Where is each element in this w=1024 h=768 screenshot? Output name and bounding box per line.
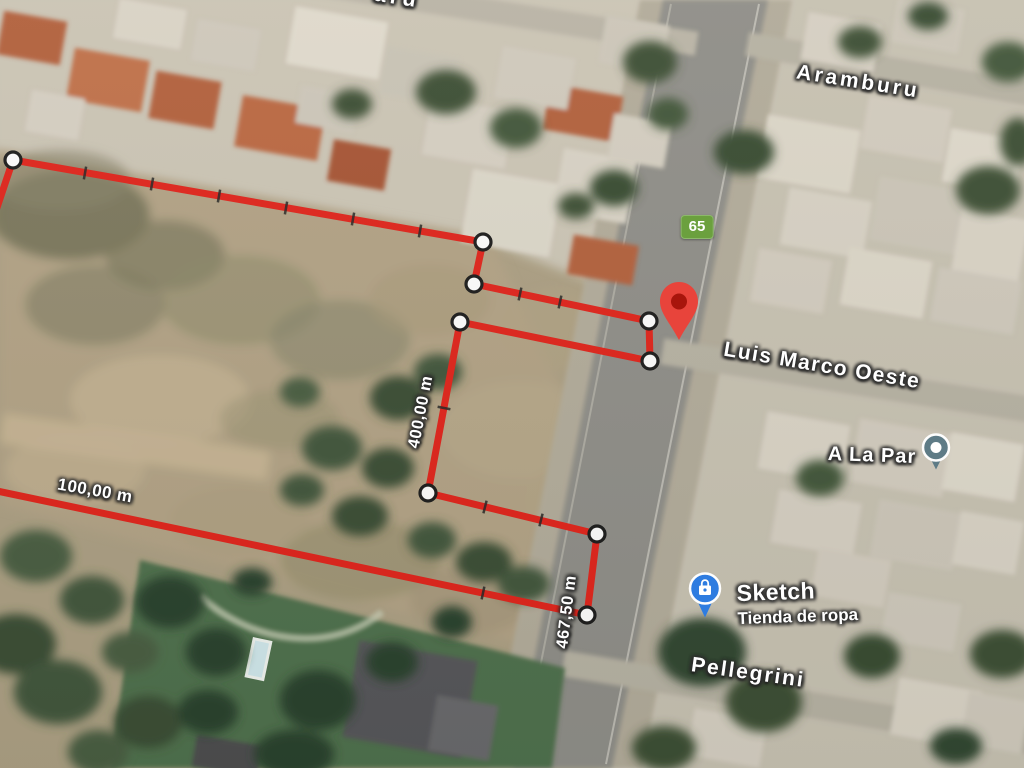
poi-sketch-category: Tienda de ropa [737,605,858,629]
poi-pin-a-la-par[interactable] [920,432,952,477]
poi-sketch[interactable]: Sketch Tienda de ropa [736,576,858,629]
location-pin[interactable] [656,280,702,347]
route-badge-65: 65 [681,215,714,239]
poi-pin-sketch[interactable] [685,571,725,626]
boundary-tick-marks [84,167,561,600]
parcel-boundary-line [0,160,650,615]
poi-sketch-name: Sketch [736,576,857,607]
satellite-map: aru Aramburu Luis Marco Oeste Pellegrini… [0,0,1024,768]
poi-label-a-la-par[interactable]: A La Par [827,443,916,469]
boundary-vertex-dots [5,152,658,623]
map-dot-pin-icon [920,432,952,472]
shopping-bag-icon [685,571,725,621]
location-pin-icon [656,280,702,342]
